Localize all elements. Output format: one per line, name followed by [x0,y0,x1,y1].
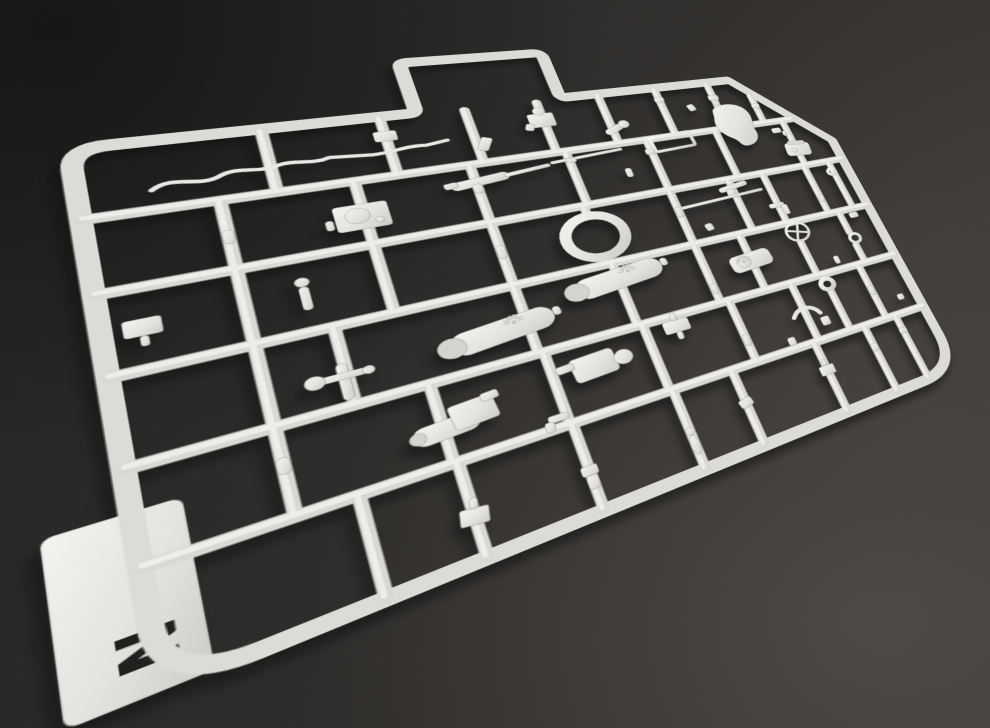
part-shape [704,222,716,231]
part-shape [558,211,632,263]
part-shape [372,130,398,143]
part-shape [293,277,311,289]
part-center-ring [558,211,632,263]
part-subshape [525,124,535,132]
runner-segment [645,139,668,189]
part-shape [751,103,760,108]
runner-segment [799,242,816,275]
part-shape [644,148,656,155]
part-pin-1 [624,168,634,178]
part-bit-9 [896,293,905,300]
part-shape [325,221,336,232]
part-shape [495,245,509,260]
runner-segment [596,95,617,143]
runner-segment [797,223,798,241]
part-shape [567,347,621,384]
runner-segment [727,300,755,361]
runner-segment [829,289,849,329]
part-pin-4 [817,194,826,202]
sprue-runner: N [57,70,966,706]
runner-grid [71,74,957,688]
part-bushing [819,277,836,291]
part-shape [817,194,826,202]
part-pin-3 [495,245,509,260]
part-shape [653,97,665,103]
runner-segment [641,324,669,390]
part-shape [624,168,634,178]
part-shape [771,127,782,133]
part-gearbox [321,200,393,235]
part-shape [820,315,832,326]
part-shape [687,433,704,456]
part-subshape [469,497,479,510]
runner-segment [802,165,827,213]
part-lever [684,426,704,456]
part-bit-4 [751,103,760,108]
part-shape [298,286,314,311]
photo-background: N [0,0,990,728]
part-bit-6 [704,222,716,231]
runner-base [73,75,957,687]
part-subshape [676,330,685,340]
part-subshape [687,433,704,456]
part-subshape [707,95,719,101]
part-shape [140,335,151,347]
runner-segment [463,109,483,162]
runner-segment [761,172,786,222]
runner-segment [894,315,927,378]
part-shape [221,229,236,244]
part-side-box [121,315,166,351]
part-axle-pin [293,277,317,312]
runner-segment [813,342,847,410]
part-shape [504,163,552,177]
part-subshape [325,221,336,232]
part-shape [707,95,719,101]
part-shape [676,330,685,340]
part-shape [686,104,697,112]
part-shape [555,363,576,376]
part-pin-top [221,229,236,244]
part-shape [149,140,451,190]
part-subshape [504,163,552,177]
part-shape [469,497,479,510]
part-subshape [820,315,832,326]
part-clamp-box [783,140,813,157]
part-turret-top [517,106,559,132]
part-shape [832,255,841,264]
runner-segment [863,325,897,390]
part-shape [896,293,905,300]
part-bit-5 [644,148,656,155]
runner-segment [96,158,842,294]
part-box-top [372,130,398,143]
runner-segment [789,282,817,340]
part-pin-6 [832,255,841,264]
part-subshape [302,374,327,393]
part-subshape [771,127,782,133]
runner-segment [653,89,675,134]
part-subshape [567,347,621,384]
part-pin-5 [709,283,720,294]
sprue-svg: N [57,70,966,706]
runner-hi [71,74,956,685]
part-ring-mid [848,232,862,243]
part-bit-3 [707,95,722,106]
part-shape [819,277,836,291]
part-shape [848,232,862,243]
part-bit-2 [686,104,697,112]
part-subshape [555,363,576,376]
part-tow-cable [149,140,451,190]
part-shape [709,283,720,294]
part-subshape [293,277,311,289]
part-subshape [140,335,151,347]
part-shape [525,124,535,132]
part-subshape [298,286,314,311]
part-bit-1 [653,97,665,103]
part-shape [302,374,327,393]
